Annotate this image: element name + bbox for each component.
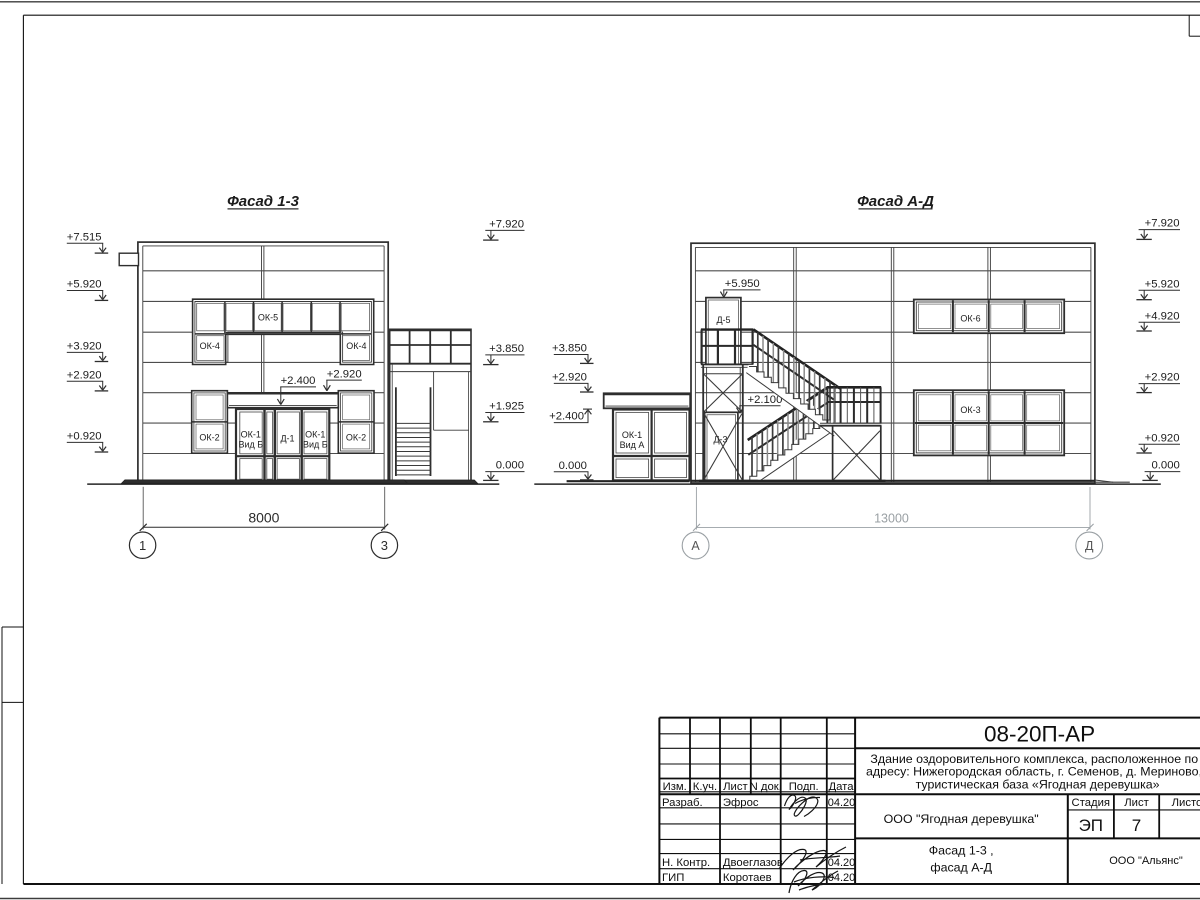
svg-text:04.20: 04.20 bbox=[828, 857, 856, 869]
svg-text:Фасад 1-3 ,: Фасад 1-3 , bbox=[929, 843, 994, 857]
svg-text:ГИП: ГИП bbox=[662, 872, 684, 884]
svg-text:Лист: Лист bbox=[723, 781, 748, 793]
svg-text:Лист: Лист bbox=[1124, 797, 1149, 809]
svg-text:Подп.: Подп. bbox=[789, 781, 819, 793]
svg-text:Д: Д bbox=[1085, 539, 1094, 553]
svg-text:04.20: 04.20 bbox=[828, 797, 856, 809]
svg-text:3: 3 bbox=[381, 538, 388, 553]
svg-text:+7.920: +7.920 bbox=[489, 219, 524, 231]
svg-text:+0.920: +0.920 bbox=[1145, 432, 1180, 444]
svg-text:+3.920: +3.920 bbox=[67, 341, 102, 353]
svg-text:+5.920: +5.920 bbox=[1145, 278, 1180, 290]
svg-text:Изм.: Изм. bbox=[663, 781, 687, 793]
svg-text:0.000: 0.000 bbox=[559, 460, 587, 472]
svg-text:1: 1 bbox=[139, 538, 146, 553]
svg-text:13000: 13000 bbox=[874, 512, 909, 526]
svg-text:N док.: N док. bbox=[750, 781, 782, 793]
svg-text:ОК-2: ОК-2 bbox=[199, 433, 219, 443]
svg-text:Вид А: Вид А bbox=[620, 440, 645, 450]
svg-text:ОК-1: ОК-1 bbox=[622, 430, 642, 440]
svg-text:0.000: 0.000 bbox=[1152, 460, 1180, 472]
svg-text:+3.850: +3.850 bbox=[489, 343, 524, 355]
svg-text:Двоеглазов: Двоеглазов bbox=[723, 857, 783, 869]
svg-text:ООО "Ягодная деревушка": ООО "Ягодная деревушка" bbox=[884, 812, 1039, 826]
svg-text:ОК-1: ОК-1 bbox=[241, 430, 261, 440]
svg-text:ОК-4: ОК-4 bbox=[200, 341, 220, 351]
svg-text:+3.850: +3.850 bbox=[552, 343, 587, 355]
svg-text:+0.920: +0.920 bbox=[67, 431, 102, 443]
svg-text:+1.925: +1.925 bbox=[489, 401, 524, 413]
svg-text:Вид Б: Вид Б bbox=[238, 440, 263, 450]
svg-text:+5.950: +5.950 bbox=[725, 278, 760, 290]
svg-text:Н. Контр.: Н. Контр. bbox=[662, 857, 710, 869]
svg-text:Разраб.: Разраб. bbox=[662, 797, 703, 809]
svg-text:+2.100: +2.100 bbox=[748, 394, 783, 406]
svg-text:фасад А-Д: фасад А-Д bbox=[930, 860, 992, 874]
svg-text:+2.920: +2.920 bbox=[1145, 372, 1180, 384]
svg-text:Эфрос: Эфрос bbox=[723, 797, 759, 809]
svg-text:Вид Б: Вид Б bbox=[303, 440, 328, 450]
svg-text:+2.400: +2.400 bbox=[549, 411, 584, 423]
svg-text:Д-5: Д-5 bbox=[716, 315, 730, 325]
svg-text:08-20П-АР: 08-20П-АР bbox=[984, 721, 1095, 746]
svg-text:ОК-4: ОК-4 bbox=[346, 341, 366, 351]
svg-text:Фасад 1-3: Фасад 1-3 bbox=[227, 193, 300, 210]
svg-text:+7.920: +7.920 bbox=[1145, 218, 1180, 230]
svg-text:ОК-6: ОК-6 bbox=[960, 314, 980, 324]
svg-text:+7.515: +7.515 bbox=[67, 231, 102, 243]
svg-text:04.20: 04.20 bbox=[828, 872, 856, 884]
svg-text:А: А bbox=[691, 539, 700, 553]
svg-text:ООО "Альянс": ООО "Альянс" bbox=[1109, 855, 1183, 867]
svg-text:0.000: 0.000 bbox=[496, 460, 524, 472]
svg-text:+4.920: +4.920 bbox=[1145, 310, 1180, 322]
svg-text:К.уч.: К.уч. bbox=[693, 781, 717, 793]
svg-text:туристическая база «Ягодная де: туристическая база «Ягодная деревушка» bbox=[916, 777, 1160, 791]
svg-text:Фасад А-Д: Фасад А-Д bbox=[857, 193, 934, 210]
svg-text:Листов: Листов bbox=[1172, 797, 1200, 809]
svg-text:ОК-1: ОК-1 bbox=[305, 430, 325, 440]
svg-text:Д-1: Д-1 bbox=[280, 434, 294, 444]
svg-text:+2.920: +2.920 bbox=[67, 369, 102, 381]
svg-text:ОК-2: ОК-2 bbox=[346, 433, 366, 443]
svg-text:+2.920: +2.920 bbox=[552, 372, 587, 384]
svg-text:ОК-5: ОК-5 bbox=[258, 313, 278, 323]
svg-text:Коротаев: Коротаев bbox=[723, 872, 772, 884]
svg-text:ЭП: ЭП bbox=[1079, 816, 1103, 835]
svg-text:Дата: Дата bbox=[828, 781, 854, 793]
svg-text:7: 7 bbox=[1132, 816, 1141, 835]
svg-text:Стадия: Стадия bbox=[1072, 797, 1111, 809]
svg-text:8000: 8000 bbox=[248, 510, 279, 526]
svg-text:+2.920: +2.920 bbox=[327, 368, 362, 380]
svg-text:+2.400: +2.400 bbox=[281, 375, 316, 387]
svg-text:ОК-3: ОК-3 bbox=[960, 405, 980, 415]
svg-text:+5.920: +5.920 bbox=[67, 279, 102, 291]
